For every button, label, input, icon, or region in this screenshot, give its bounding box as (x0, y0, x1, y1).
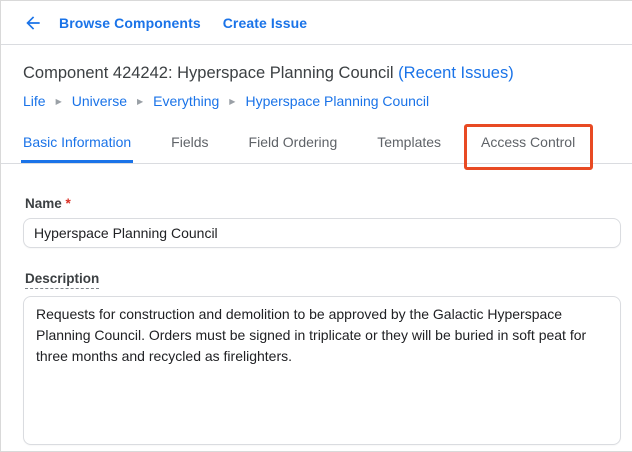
tab-templates[interactable]: Templates (375, 120, 443, 163)
name-input[interactable] (23, 218, 621, 248)
name-field-label: Name * (25, 195, 632, 212)
tab-access-control[interactable]: Access Control (479, 120, 577, 163)
breadcrumb-item-universe[interactable]: Universe (72, 93, 127, 109)
breadcrumb-separator-icon: ▶ (229, 97, 235, 106)
tab-bar: Basic Information Fields Field Ordering … (1, 120, 632, 164)
description-textarea[interactable]: Requests for construction and demolition… (23, 296, 621, 445)
breadcrumb-item-hyperspace-planning-council[interactable]: Hyperspace Planning Council (245, 93, 429, 109)
breadcrumb-item-everything[interactable]: Everything (153, 93, 219, 109)
required-asterisk: * (66, 196, 71, 211)
name-label-text: Name (25, 196, 62, 211)
breadcrumb-item-life[interactable]: Life (23, 93, 46, 109)
component-edit-page: Browse Components Create Issue Component… (0, 0, 632, 452)
description-label-text: Description (25, 270, 99, 289)
recent-issues-link[interactable]: (Recent Issues) (398, 64, 514, 82)
page-title: Component 424242: Hyperspace Planning Co… (23, 63, 632, 83)
back-button[interactable] (21, 11, 45, 35)
top-bar: Browse Components Create Issue (1, 1, 632, 45)
tab-fields[interactable]: Fields (169, 120, 210, 163)
tab-basic-information[interactable]: Basic Information (21, 120, 133, 163)
arrow-back-icon (23, 13, 43, 33)
create-issue-link[interactable]: Create Issue (223, 15, 307, 31)
tab-field-ordering[interactable]: Field Ordering (247, 120, 340, 163)
breadcrumb: Life ▶ Universe ▶ Everything ▶ Hyperspac… (23, 93, 632, 109)
breadcrumb-separator-icon: ▶ (137, 97, 143, 106)
tab-access-control-label: Access Control (481, 134, 575, 150)
description-field-label: Description (25, 270, 632, 289)
breadcrumb-separator-icon: ▶ (56, 97, 62, 106)
component-title-text: Component 424242: Hyperspace Planning Co… (23, 64, 394, 82)
browse-components-link[interactable]: Browse Components (59, 15, 201, 31)
